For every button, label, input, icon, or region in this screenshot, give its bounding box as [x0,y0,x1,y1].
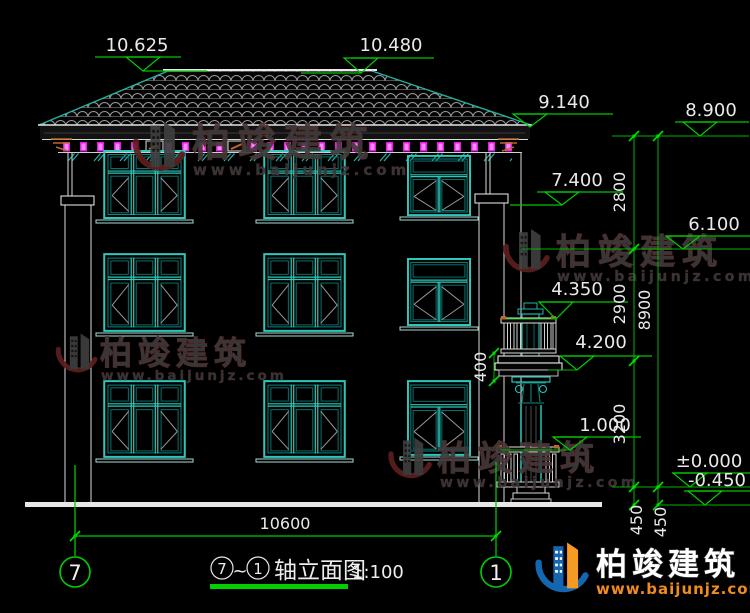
dim-floor3: 2800 [610,172,629,213]
ground-line [25,502,602,507]
balcony-slab [498,356,559,363]
watermark-3: 柏竣建筑 www.baijunjz.com [58,333,287,384]
axis-number-right: 1 [489,561,502,585]
title-scale: 1:100 [352,562,404,583]
dim-plinth-a: 450 [627,505,646,536]
level-label: 4.350 [551,279,603,300]
dim-balcony-beam: 400 [471,352,490,383]
window-2col-f3-right [408,156,470,215]
brand-logo-icon [539,543,586,590]
elevation-marker-balcony-slab: 4.200 [548,332,652,370]
watermark-2: 柏竣建筑 www.baijunjz.com [506,229,750,285]
title-axis-left: 7 [217,560,227,578]
level-label: 6.100 [688,214,740,235]
overall-width-dimension: 10600 [70,514,501,541]
column-abacus [512,377,550,382]
level-label: ±0.000 [676,451,743,472]
level-label: 10.625 [106,35,169,56]
axis-number-left: 7 [68,561,81,585]
balcony-rail-bottom [501,349,556,353]
elevation-marker-porch-roof: 7.400 [510,170,623,205]
elevation-marker-eave: 9.140 [513,92,613,127]
dim-plinth-b: 450 [651,507,670,538]
brand-name: 柏竣建筑 [596,547,740,583]
dim-total-height: 8900 [635,290,654,331]
dim-floor1: 3200 [610,404,629,445]
balcony [495,303,562,376]
window-2col-f2-right [408,259,470,325]
elevation-marker-ridge-right: 10.480 [301,35,434,73]
watermark-url: www.baijunjz.com [193,161,410,179]
windows [96,151,478,462]
elevation-drawing-canvas: 柏竣建筑 www.baijunjz.com 柏竣建筑 www.baijunjz.… [0,0,750,613]
window-3col-f2-left [104,254,185,331]
level-label: 10.480 [360,35,423,56]
window-3col-f1-left [104,381,185,457]
title-tilde: ~ [232,561,247,582]
watermark-name: 柏竣建筑 [100,334,252,372]
cad-drawing: 柏竣建筑 www.baijunjz.com 柏竣建筑 www.baijunjz.… [0,0,750,613]
hip-roof [38,70,532,125]
drawing-title: 7 ~ 1 轴立面图 1:100 [210,557,404,589]
elevation-marker-right-top: 8.900 [612,100,749,136]
watermark-name: 柏竣建筑 [556,232,724,273]
elevation-marker-ridge-left: 10.625 [95,35,207,71]
level-label: 4.200 [575,332,627,353]
watermark-name: 柏竣建筑 [192,121,376,165]
level-label: 9.140 [538,92,590,113]
window-3col-f2-center [264,254,345,331]
dim-floor2: 2900 [610,284,629,325]
level-label: -0.450 [688,470,746,491]
brand-logo: 柏竣建筑 www.baijunjz.com [539,543,750,599]
roof-tile-pattern [39,71,531,125]
watermark-url: www.baijunjz.com [440,475,639,491]
dim-overall-width: 10600 [260,514,311,533]
watermark-url: www.baijunjz.com [101,368,287,384]
watermark-4: 柏竣建筑 www.baijunjz.com [391,438,639,492]
level-label: 7.400 [551,170,603,191]
title-underline [210,584,348,589]
title-axis-right: 1 [253,560,263,578]
level-label: 8.900 [685,100,737,121]
brand-url: www.baijunjz.com [596,580,750,598]
window-3col-f1-center [264,381,345,457]
